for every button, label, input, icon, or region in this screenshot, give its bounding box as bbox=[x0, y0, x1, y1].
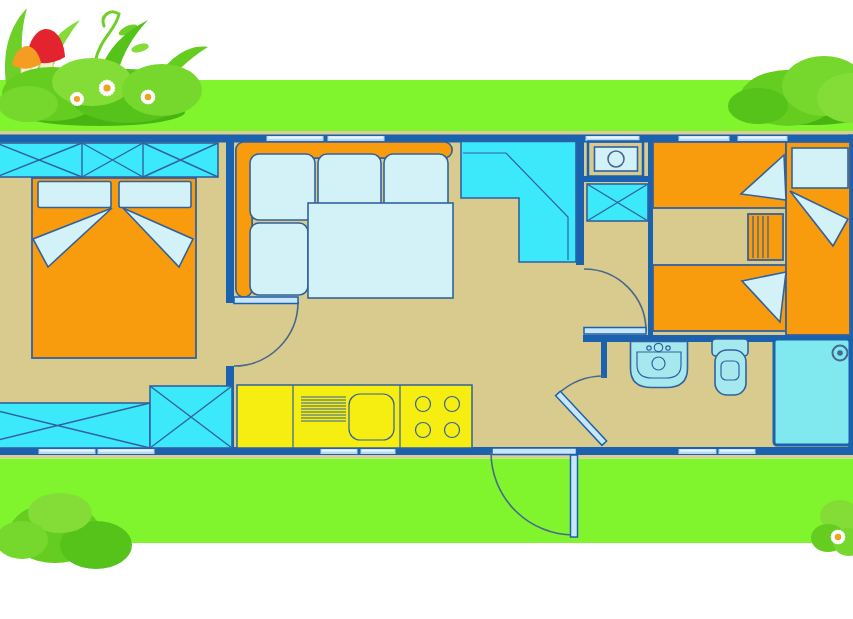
drawer-chest bbox=[748, 214, 783, 260]
wall-living-hall bbox=[576, 142, 584, 265]
pillow-right bbox=[119, 182, 191, 208]
window-bathroom-2 bbox=[718, 449, 756, 455]
window-kitchen-2 bbox=[360, 449, 396, 455]
decoration-top-left bbox=[0, 8, 208, 126]
x-shelf bbox=[587, 184, 648, 221]
pillow-right-bed bbox=[792, 148, 848, 188]
kitchen bbox=[237, 385, 472, 448]
seat-cushion bbox=[250, 154, 315, 220]
x-wardrobe-top bbox=[0, 143, 218, 177]
window-living-2 bbox=[327, 136, 385, 142]
double-bed bbox=[32, 178, 196, 358]
floor-plan-scene bbox=[0, 0, 853, 619]
window-bedroom-1 bbox=[38, 449, 96, 455]
living-table bbox=[308, 203, 453, 298]
top-trim-strip bbox=[0, 131, 853, 135]
entrance-sill bbox=[492, 448, 577, 455]
pillow-left bbox=[38, 182, 111, 208]
vine-leaf bbox=[130, 42, 149, 54]
window-twin-1 bbox=[678, 136, 730, 142]
door-leaf bbox=[584, 328, 646, 335]
bottom-trim-strip bbox=[0, 455, 853, 459]
bottom-grass-strip bbox=[0, 459, 853, 544]
bush-blob bbox=[728, 88, 788, 124]
washbasin bbox=[631, 342, 688, 388]
toilet bbox=[712, 339, 748, 395]
window-kitchen-1 bbox=[320, 449, 358, 455]
window-bedroom-2 bbox=[97, 449, 155, 455]
decoration-top-right bbox=[728, 56, 853, 126]
shower-cabin bbox=[774, 339, 850, 445]
drainer-lines bbox=[301, 397, 346, 421]
wall-bedroom-living-upper bbox=[226, 142, 234, 303]
seat-cushion bbox=[250, 223, 308, 295]
window-twin-2 bbox=[737, 136, 788, 142]
window-bathroom-1 bbox=[678, 449, 717, 455]
boiler-unit bbox=[588, 142, 643, 177]
wall-bathroom-stub bbox=[601, 342, 607, 378]
window-living-1 bbox=[266, 136, 324, 142]
toilet-bowl bbox=[715, 350, 746, 395]
x-bench-bottom bbox=[0, 403, 150, 448]
x-wardrobe-bottom bbox=[150, 386, 232, 448]
door-leaf bbox=[571, 455, 578, 537]
door-leaf bbox=[234, 297, 298, 304]
